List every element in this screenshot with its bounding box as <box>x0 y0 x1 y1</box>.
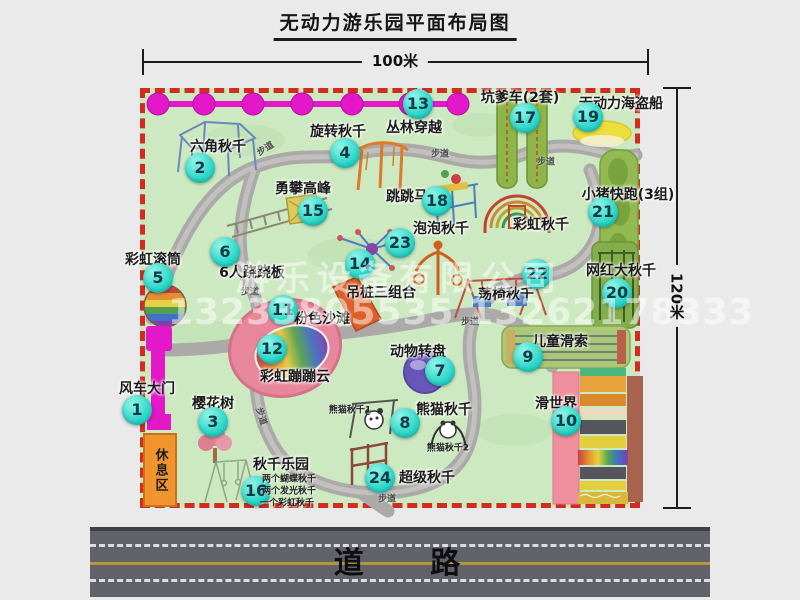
badge-22: 22 <box>522 259 552 289</box>
badge-15: 15 <box>298 196 328 226</box>
map-label-13: 丛林穿越 <box>386 117 442 137</box>
walkway-label-3: 步道 <box>241 285 259 298</box>
badge-14: 14 <box>345 249 375 279</box>
badge-9: 9 <box>513 342 543 372</box>
map-label-12: 彩虹蹦蹦云 <box>260 366 330 386</box>
badge-24: 24 <box>365 463 395 493</box>
map-label-15: 勇攀高峰 <box>275 178 331 198</box>
playground-plan-figure: 无动力游乐园平面布局图 100米 120米 <box>0 0 800 600</box>
map-item-layer: 风车大门1六角秋千2樱花树3旋转秋千4彩虹滚筒56人跷跷板6动物转盘7熊猫秋千8… <box>0 0 800 600</box>
badge-17: 17 <box>510 103 540 133</box>
map-label-23: 泡泡秋千 <box>413 218 469 238</box>
badge-4: 4 <box>330 138 360 168</box>
badge-11: 11 <box>268 295 298 325</box>
walkway-label-0: 步道 <box>254 138 276 159</box>
walkway-label-5: 步道 <box>253 405 271 426</box>
badge-20: 20 <box>602 278 632 308</box>
badge-19: 19 <box>573 102 603 132</box>
sub-label-1: 熊猫秋千2 <box>427 441 469 454</box>
badge-3: 3 <box>198 407 228 437</box>
map-label-rainbow-swing: 彩虹秋千 <box>513 214 569 234</box>
badge-7: 7 <box>425 356 455 386</box>
walkway-label-4: 步道 <box>461 315 479 328</box>
badge-23: 23 <box>385 228 415 258</box>
badge-5: 5 <box>143 263 173 293</box>
badge-1: 1 <box>122 395 152 425</box>
sub-label-0: 熊猫秋千1 <box>329 403 371 416</box>
badge-8: 8 <box>390 408 420 438</box>
badge-10: 10 <box>551 406 581 436</box>
walkway-label-2: 步道 <box>537 155 555 168</box>
map-label-11: 粉色沙滩 <box>294 308 350 328</box>
map-label-1: 风车大门 <box>119 378 175 398</box>
badge-18: 18 <box>422 186 452 216</box>
badge-6: 6 <box>210 237 240 267</box>
map-label-8: 熊猫秋千 <box>416 399 472 419</box>
badge-2: 2 <box>185 153 215 183</box>
sub-label-4: 一个彩虹秋千 <box>260 496 314 509</box>
walkway-label-6: 步道 <box>378 492 396 505</box>
badge-21: 21 <box>588 197 618 227</box>
walkway-label-1: 步道 <box>431 147 449 160</box>
map-label-4: 旋转秋千 <box>310 121 366 141</box>
map-label-14: 吊桩三组合 <box>346 282 416 302</box>
badge-13: 13 <box>403 89 433 119</box>
map-label-20: 网红大秋千 <box>586 260 656 280</box>
map-label-22: 荡椅秋千 <box>478 284 534 304</box>
map-label-24: 超级秋千 <box>399 467 455 487</box>
badge-12: 12 <box>257 334 287 364</box>
